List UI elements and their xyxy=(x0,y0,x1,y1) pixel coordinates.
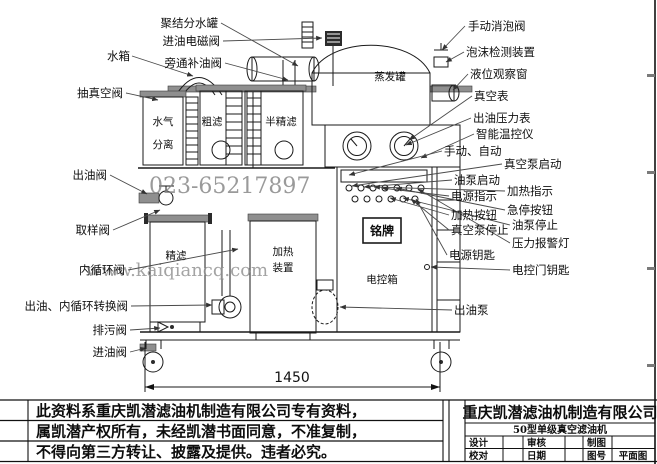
cell-draft: 制图 xyxy=(587,437,606,449)
notice-line-3: 不得向第三方转让、披露及提供。违者必究。 xyxy=(36,443,336,461)
label-power-key: 电源钥匙 xyxy=(449,248,495,262)
label-cabinet-door-key: 电控门钥匙 xyxy=(512,263,570,277)
label-inner-circulation-valve: 内循环阀 xyxy=(79,263,125,277)
label-water-tank: 水箱 xyxy=(107,49,130,63)
cell-date: 日期 xyxy=(527,450,546,462)
label-pressure-alarm-lamp: 压力报警灯 xyxy=(512,236,570,250)
label-nameplate: 铭牌 xyxy=(370,223,394,238)
label-smart-temp-controller: 智能温控仪 xyxy=(476,127,534,141)
label-heating-indicator: 加热指示 xyxy=(507,184,553,198)
drawing-page: 023-65217897 www.kaiqiancq.com xyxy=(0,0,657,464)
label-fine-filter: 精滤 xyxy=(166,249,187,262)
label-outlet-pressure-gauge: 出油压力表 xyxy=(473,111,531,125)
label-outlet-circulation-switch-valve: 出油、内循环转换阀 xyxy=(25,299,129,313)
drain-valve-fitting xyxy=(158,322,174,332)
solenoid-valve xyxy=(325,31,342,46)
finned-breather xyxy=(302,22,313,48)
label-oil-pump-stop: 油泵停止 xyxy=(512,218,558,232)
door-keyhole xyxy=(425,265,430,270)
label-oil-pump-start: 油泵启动 xyxy=(454,173,500,187)
label-drain-valve: 排污阀 xyxy=(93,323,128,337)
label-vacuum-pump-stop: 真空泵停止 xyxy=(451,223,509,237)
vacuum-gauge-dial xyxy=(343,132,371,160)
label-heating-button: 加热按钮 xyxy=(451,208,497,222)
cell-review: 审核 xyxy=(527,437,547,449)
company-name: 重庆凯潜滤油机制造有限公司 xyxy=(462,404,657,422)
label-level-sight-glass: 液位观察窗 xyxy=(470,67,528,81)
label-oil-inlet-valve: 进油阀 xyxy=(93,345,128,359)
button-strip xyxy=(341,170,427,182)
label-emergency-stop-button: 急停按钮 xyxy=(507,203,553,217)
base-frame xyxy=(140,322,460,340)
label-heater-l2: 装置 xyxy=(273,261,294,274)
cell-drawing-no: 图号 xyxy=(587,451,607,462)
label-manual-defoam-valve: 手动消泡阀 xyxy=(468,19,526,33)
label-oil-outlet-pump: 出油泵 xyxy=(454,303,489,317)
dimension-1450: 1450 xyxy=(274,370,310,386)
evaporation-tank xyxy=(312,43,459,125)
notice-line-1: 此资料系重庆凯潜滤油机制造有限公司专有资料， xyxy=(36,402,366,420)
label-inlet-solenoid-valve: 进油电磁阀 xyxy=(163,34,221,48)
label-coalescer-tank: 聚结分水罐 xyxy=(161,16,219,30)
watermark-phone: 023-65217897 xyxy=(149,174,310,199)
label-foam-detector: 泡沫检测装置 xyxy=(466,45,535,59)
label-sampling-valve: 取样阀 xyxy=(76,223,111,237)
label-power-indicator: 电源指示 xyxy=(451,189,497,203)
label-vacuum-gauge: 真空表 xyxy=(474,89,509,103)
width-dimension: 1450 xyxy=(145,342,440,392)
water-gas-separator-tank xyxy=(143,97,183,165)
label-evaporation-tank: 蒸发罐 xyxy=(374,70,406,83)
foam-detector-box xyxy=(434,57,448,67)
caster-right xyxy=(431,340,451,372)
product-name: 50型单级真空滤油机 xyxy=(513,423,607,436)
label-coarse-filter: 粗滤 xyxy=(202,115,223,128)
label-oil-outlet-valve: 出油阀 xyxy=(73,168,108,182)
label-vacuum-suction-valve: 抽真空阀 xyxy=(77,86,123,100)
cell-design: 设计 xyxy=(469,437,489,449)
inlet-valve-fitting xyxy=(140,344,156,351)
title-block: 重庆凯潜滤油机制造有限公司 50型单级真空滤油机 设计 审核 制图 校对 日期 … xyxy=(462,404,657,463)
bottom-band: 此资料系重庆凯潜滤油机制造有限公司专有资料， 属凯潜产权所有，未经凯潜书面同意，… xyxy=(0,400,657,462)
purifier-diagram: 023-65217897 www.kaiqiancq.com xyxy=(0,0,657,464)
label-bypass-refill-valve: 旁通补油阀 xyxy=(165,56,223,70)
label-heater-l1: 加热 xyxy=(273,245,294,258)
notice-line-2: 属凯潜产权所有，未经凯潜书面同意，不准复制， xyxy=(36,423,366,441)
page-right-edge xyxy=(647,0,655,464)
label-manual-auto: 手动、自动 xyxy=(444,144,502,158)
label-vacuum-pump-start: 真空泵启动 xyxy=(504,157,562,171)
label-control-box: 电控箱 xyxy=(366,273,398,286)
cell-view-name: 平面图 xyxy=(619,451,648,462)
label-semi-fine-filter: 半精滤 xyxy=(265,115,297,128)
cell-proofread: 校对 xyxy=(469,450,489,462)
label-water-gas-separator-l1: 水气 xyxy=(153,115,174,128)
label-water-gas-separator-l2: 分离 xyxy=(153,138,174,151)
